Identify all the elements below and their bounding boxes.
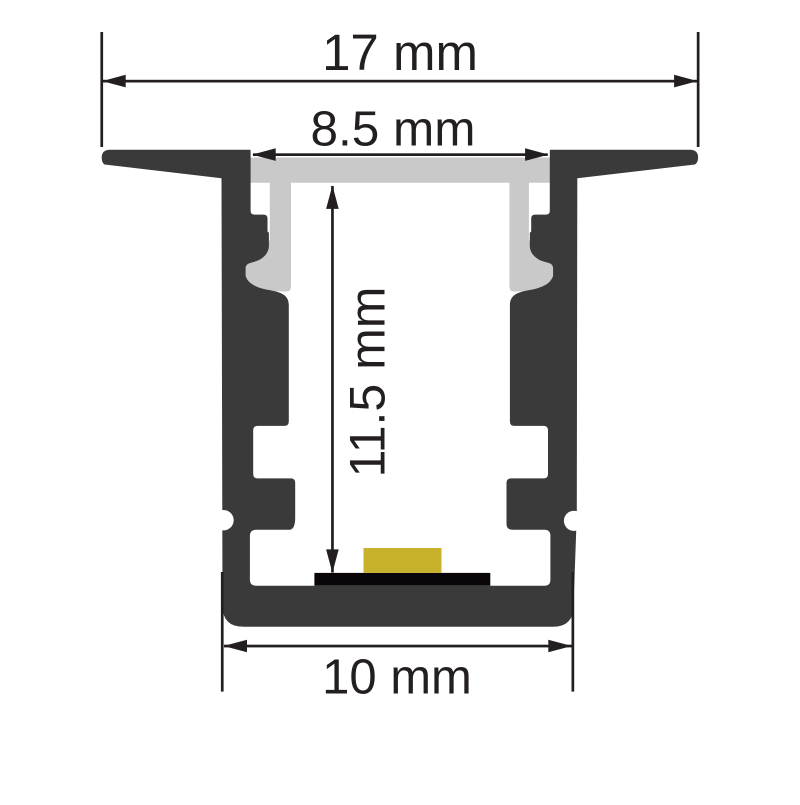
svg-text:17 mm: 17 mm bbox=[322, 24, 478, 81]
svg-text:11.5 mm: 11.5 mm bbox=[340, 287, 396, 478]
svg-text:8.5 mm: 8.5 mm bbox=[310, 102, 475, 157]
svg-text:10 mm: 10 mm bbox=[322, 651, 472, 705]
